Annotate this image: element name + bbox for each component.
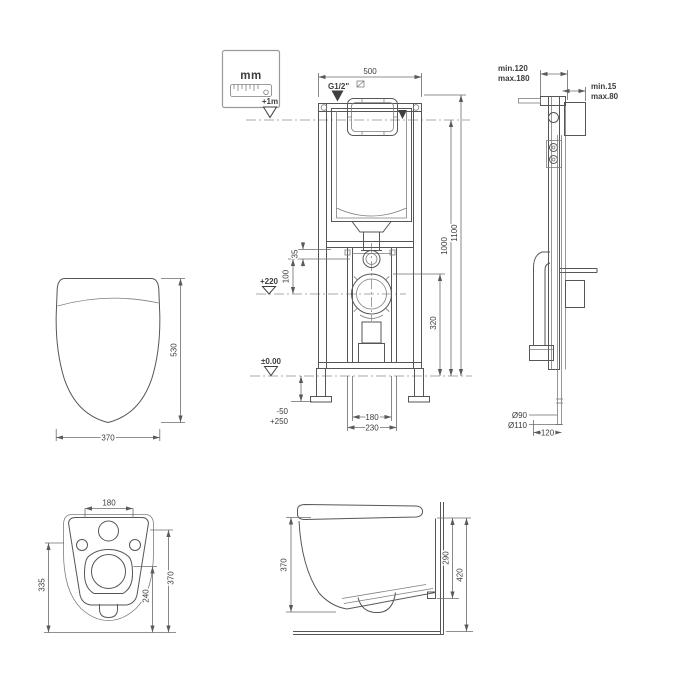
dim-label-finish-min: min.15 xyxy=(591,82,617,91)
dim-label-335: 335 xyxy=(38,578,47,592)
dim-label-1000: 1000 xyxy=(440,237,449,255)
dim-label-370-back: 370 xyxy=(167,571,176,585)
dim-label-d90: Ø90 xyxy=(512,411,528,420)
dim-label-370-seat: 370 xyxy=(101,434,115,443)
pan-side-view: 370 290 420 xyxy=(280,502,474,635)
dim-label-100: 100 xyxy=(282,269,291,283)
cistern xyxy=(332,99,412,251)
left-foot-plate xyxy=(311,397,332,403)
adjustment-rod xyxy=(519,99,541,104)
level-label-1m: +1m xyxy=(262,97,278,106)
installation-drawing: mm xyxy=(0,0,700,700)
level-marker-floor xyxy=(265,367,278,376)
dim-label-320: 320 xyxy=(429,316,438,330)
pan-body-profile xyxy=(299,519,436,610)
dim-label-230: 230 xyxy=(365,424,379,433)
fill-valve-marker xyxy=(398,110,407,119)
supply-label: G1/2" xyxy=(328,82,349,91)
wall-and-floor xyxy=(293,502,444,635)
outlet-bracket xyxy=(359,322,385,363)
cistern-sump xyxy=(337,208,407,216)
left-foot xyxy=(317,369,326,397)
dim-label-180-holes: 180 xyxy=(102,499,116,508)
dim-label-290: 290 xyxy=(442,551,451,565)
level-label-220: +220 xyxy=(260,277,279,286)
dim-label-420: 420 xyxy=(456,568,465,582)
outlet-elbow xyxy=(530,252,554,361)
dim-label-240: 240 xyxy=(142,589,151,603)
frame-side-view: min.120 max.180 min.15 max.80 Ø90 Ø110 1… xyxy=(498,64,619,438)
technical-drawing-canvas: mm xyxy=(0,0,700,700)
wall-anchor-hatch xyxy=(565,103,586,136)
frame-front-view: 500 G1/2" +1m 35 100 +220 ±0.00 -50 +250 xyxy=(246,67,472,433)
right-foot xyxy=(415,369,424,397)
unit-label: mm xyxy=(240,70,261,82)
access-window xyxy=(348,99,398,136)
left-rail xyxy=(319,104,327,369)
flush-bolt-bottom xyxy=(550,156,558,164)
cistern-body xyxy=(332,109,412,222)
supply-connection-marker xyxy=(332,91,344,102)
dim-label-depth-min: min.120 xyxy=(498,64,528,73)
front-view-dimensions: 500 G1/2" +1m 35 100 +220 ±0.00 -50 +250 xyxy=(260,67,466,433)
elbow-collar xyxy=(530,346,554,361)
seat-top-view: 530 370 xyxy=(56,279,185,443)
adjust-label-plus250: +250 xyxy=(270,417,289,426)
level-marker-1m xyxy=(264,107,277,118)
right-rail xyxy=(414,104,422,369)
ruler-icon xyxy=(231,85,272,97)
flush-bolt-top xyxy=(550,144,558,152)
trap-outline xyxy=(100,604,118,618)
pan-back-dimensions: 180 335 370 240 xyxy=(38,499,177,633)
flush-funnel xyxy=(352,222,391,233)
dim-label-500: 500 xyxy=(363,67,377,76)
seat-lid-profile xyxy=(298,505,423,520)
dim-label-530: 530 xyxy=(170,343,179,357)
outlet-hole xyxy=(92,555,126,589)
fixing-hole-left xyxy=(77,540,88,551)
fixing-bolt-right xyxy=(390,250,395,255)
level-marker-220 xyxy=(263,287,276,295)
rail-hole xyxy=(549,113,559,123)
dim-label-1100: 1100 xyxy=(450,224,459,242)
dim-label-370-side: 370 xyxy=(280,558,289,572)
dim-label-depth-max: max.180 xyxy=(498,74,530,83)
seat-lid-seam xyxy=(58,298,159,306)
right-foot-plate xyxy=(409,397,430,403)
flush-inlet-hole xyxy=(99,521,119,541)
spacer-block xyxy=(566,281,585,308)
dim-label-finish-max: max.80 xyxy=(591,92,619,101)
dim-label-120: 120 xyxy=(541,429,555,438)
pan-back-face xyxy=(69,518,149,606)
dim-label-35: 35 xyxy=(291,249,300,258)
dim-label-180: 180 xyxy=(365,413,379,422)
adjust-label-minus50: -50 xyxy=(276,407,288,416)
fixing-hole-right xyxy=(130,540,141,551)
level-label-floor: ±0.00 xyxy=(261,357,282,366)
pan-back-view: 180 335 370 240 xyxy=(38,499,177,633)
top-bracket xyxy=(541,97,566,106)
supply-thread-symbol xyxy=(357,81,364,87)
dim-label-d110: Ø110 xyxy=(508,421,528,430)
